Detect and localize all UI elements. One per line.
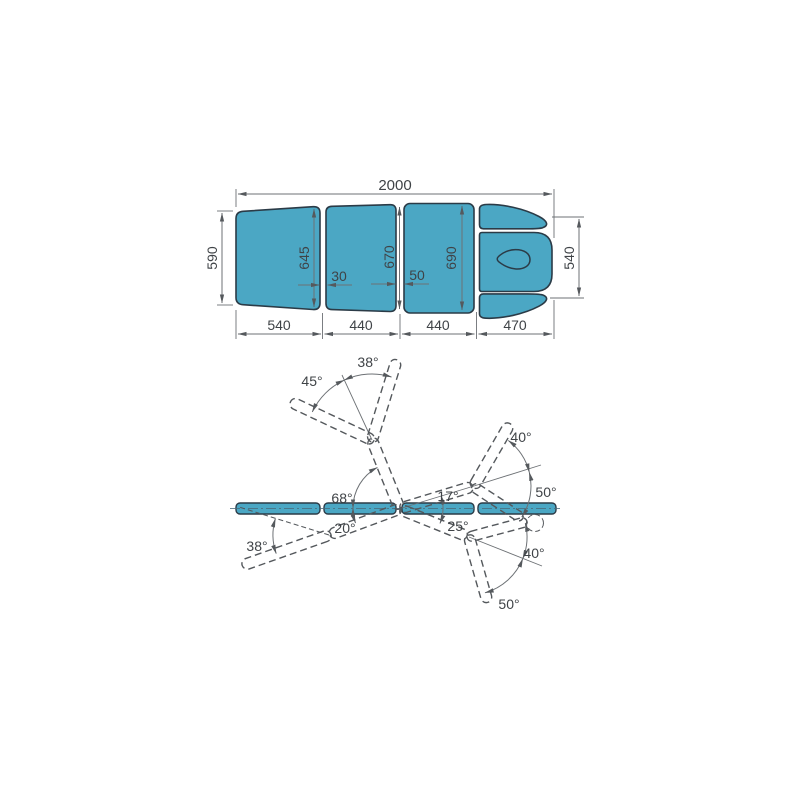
angle-leg-down-lowered-label: 50° [498, 596, 519, 612]
arc-backrest-up-68 [353, 467, 377, 508]
angle-arcs [273, 374, 531, 593]
top-view-section-3 [404, 204, 474, 314]
angle-seat-down-label: 25° [447, 518, 468, 534]
headrest-raised-outline [366, 358, 402, 443]
angle-backrest-up-label: 68° [331, 490, 352, 506]
angle-labels: 38° 45° 40° 50° 17° 68° 20° 25° 38° 40° … [246, 354, 556, 612]
angle-leg-up-raised-label: 40° [510, 429, 531, 445]
dim-height-section1-label: 645 [296, 246, 312, 270]
top-view-headrest-middle-piece [480, 233, 553, 292]
articulated-positions [240, 358, 543, 604]
leg-end-pivot-outline [527, 515, 544, 532]
top-view: 2000 590 645 670 690 540 [204, 177, 584, 339]
leg-down-from-lowered-outline [463, 534, 493, 604]
angle-headrest-up-label: 38° [357, 354, 378, 370]
dim-gap-2-label: 50 [409, 267, 425, 283]
angle-backrest-down-label: 20° [334, 520, 355, 536]
dim-overall-length-label: 2000 [378, 177, 411, 194]
ref-backrest-raised-extension [342, 375, 372, 440]
dim-height-headrest: 540 [550, 217, 584, 298]
dim-height-headrest-label: 540 [561, 246, 577, 270]
dim-gap-1-label: 30 [331, 268, 347, 284]
dim-width-section4-label: 470 [503, 317, 527, 333]
arc-leg-down-lowered-50 [485, 559, 523, 593]
angle-leg-down-raised-label: 50° [535, 484, 556, 500]
dim-height-section3-label: 690 [443, 246, 459, 270]
angle-seat-up-label: 17° [437, 488, 458, 504]
table-dimension-drawing: 2000 590 645 670 690 540 [0, 0, 800, 800]
dim-width-section1-label: 540 [267, 317, 291, 333]
arc-headrest-down-38 [273, 519, 276, 554]
dim-height-section2-label: 670 [381, 245, 397, 269]
top-view-headrest-bottom-piece [480, 294, 547, 318]
arc-leg-up-raised-40 [508, 441, 529, 473]
technical-drawing-page: 2000 590 645 670 690 540 [0, 0, 800, 800]
backrest-raised-outline [366, 436, 405, 511]
angle-headrest-back-label: 45° [301, 373, 322, 389]
top-view-headrest-top-piece [480, 204, 547, 228]
dim-height-left: 590 [204, 211, 233, 305]
angle-headrest-down-label: 38° [246, 538, 267, 554]
dim-height-left-label: 590 [204, 246, 220, 270]
dim-width-section2-label: 440 [349, 317, 373, 333]
dim-width-section3-label: 440 [426, 317, 450, 333]
side-view: 38° 45° 40° 50° 17° 68° 20° 25° 38° 40° … [230, 354, 560, 612]
angle-leg-up-lowered-label: 40° [523, 545, 544, 561]
